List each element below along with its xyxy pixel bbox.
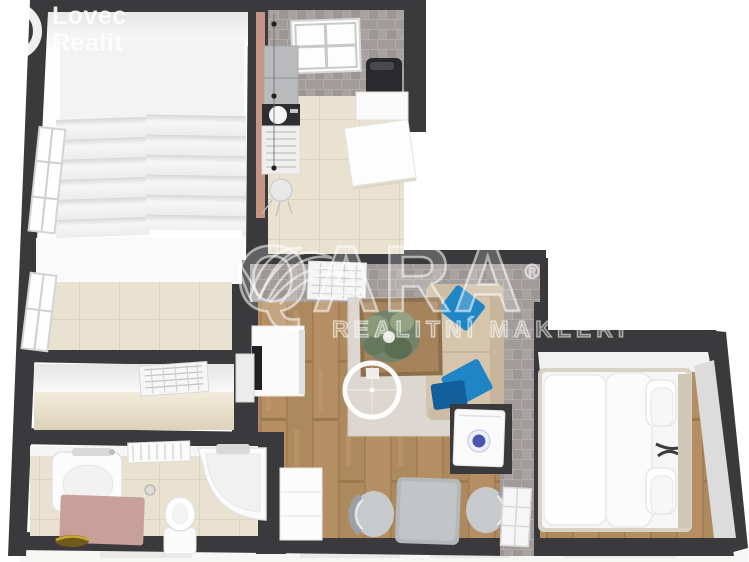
hallway xyxy=(34,362,234,430)
staircase-left-flight xyxy=(56,117,146,238)
dining-chair-left xyxy=(351,491,394,537)
pillow-4 xyxy=(651,476,673,514)
headboard xyxy=(678,374,691,528)
kitchen-window xyxy=(291,19,361,73)
kitchen xyxy=(256,10,416,254)
pillow-2 xyxy=(651,388,673,426)
bed xyxy=(538,368,692,532)
pot xyxy=(270,179,292,201)
duvet-left xyxy=(544,375,606,525)
gold-accessory xyxy=(55,535,89,547)
bedroom xyxy=(538,352,736,538)
tub-faucet xyxy=(216,444,250,454)
hall-door xyxy=(236,354,254,402)
hallway-radiator xyxy=(139,362,209,397)
hallway-floor xyxy=(34,392,234,430)
staircase-lower-floor xyxy=(36,282,232,350)
staircase-right-flight xyxy=(146,115,246,237)
sofa-back xyxy=(490,288,504,416)
floorplan-canvas xyxy=(0,0,749,562)
wall-bedroom-top xyxy=(528,330,722,352)
glass-door-right xyxy=(500,487,531,546)
toilet xyxy=(164,497,196,554)
sideboard-cabinet xyxy=(280,468,322,540)
floor-drain xyxy=(145,485,155,495)
duvet-right xyxy=(606,373,652,527)
kitchen-sink xyxy=(269,106,287,124)
open-door-panel xyxy=(344,120,416,190)
camera-360-marker[interactable] xyxy=(345,363,399,417)
staircase-room xyxy=(21,12,248,351)
staircase-landing xyxy=(60,40,244,120)
wardrobe xyxy=(252,326,305,396)
dining-table xyxy=(395,477,461,545)
plant xyxy=(360,310,420,362)
washing-machine xyxy=(453,409,505,467)
basin-faucet xyxy=(72,448,112,456)
living-radiator xyxy=(307,261,366,301)
living-room xyxy=(236,261,540,556)
bathroom-radiator xyxy=(128,441,191,463)
kitchen-white-cabinet xyxy=(356,92,408,120)
staircase-lower-wall-face xyxy=(36,238,242,284)
floorplan-3d-render: Lovec Realit QARA® REALITNÍ MAKLÉŘI xyxy=(0,0,749,562)
